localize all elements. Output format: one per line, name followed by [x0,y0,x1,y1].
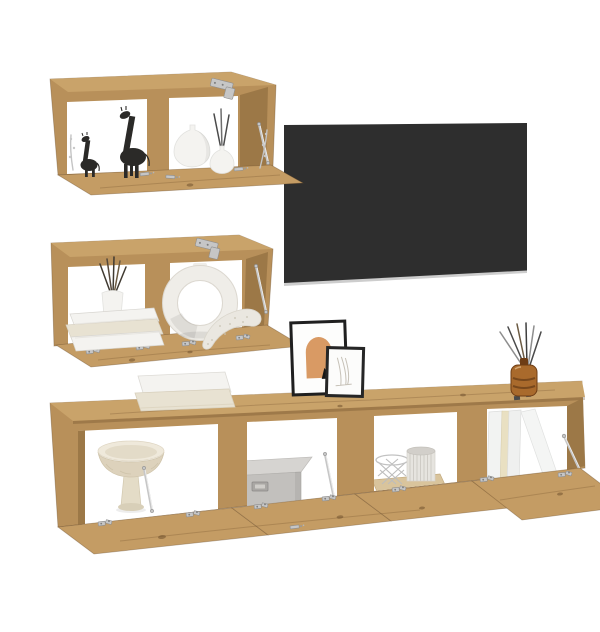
wood-knot [337,405,342,408]
book-stack: Stack of white books [66,308,164,351]
wood-knot [460,394,466,397]
frame-small: Framed grey sketch [326,348,363,397]
art-frames: Two leaning picture frames Framed orange… [291,321,364,396]
wall-cabinet-middle: Wall-mounted cabinet, artisan oak, two o… [51,235,302,367]
wall-cabinet-top: Wall-mounted cabinet, artisan oak, two o… [50,72,303,195]
book-stack-top: Stack of white and cream books [135,372,235,411]
cabinet-inner-right-face [240,87,268,167]
tv-screen [284,123,527,285]
product-image: Five-piece wall-mounted TV cabinet set i… [40,16,600,616]
stand-inner-left-face [78,431,85,526]
compartment-opening [78,424,218,525]
tv: Wall-mounted flat screen TV [284,123,527,286]
ribbed-pot: Ribbed white pot [407,447,435,481]
scene-illustration: Wall-mounted flat screen TV Wall-mounted… [40,16,600,616]
